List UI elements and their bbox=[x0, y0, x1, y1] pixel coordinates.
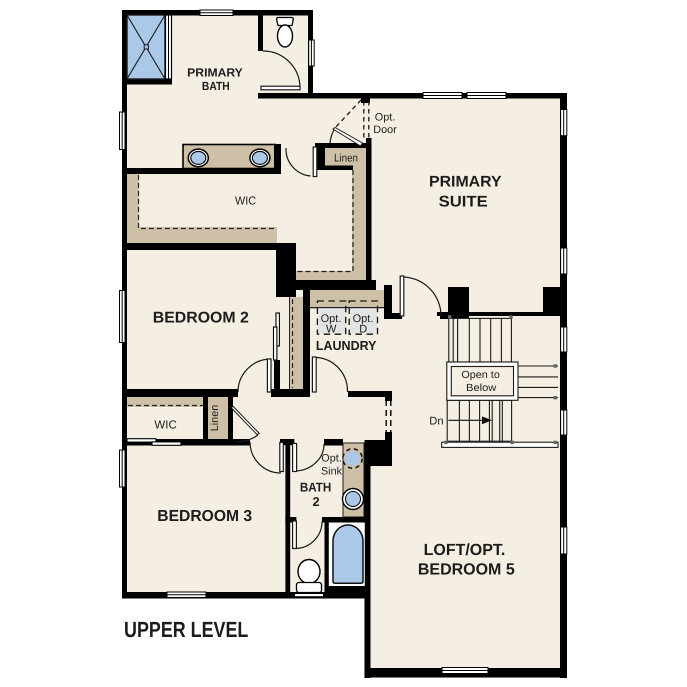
svg-text:LAUNDRY: LAUNDRY bbox=[316, 338, 377, 353]
svg-text:W: W bbox=[326, 324, 337, 336]
svg-text:PRIMARY: PRIMARY bbox=[429, 174, 502, 191]
svg-text:BEDROOM 2: BEDROOM 2 bbox=[153, 310, 249, 327]
svg-text:PRIMARY: PRIMARY bbox=[187, 66, 243, 80]
svg-text:SUITE: SUITE bbox=[439, 194, 488, 211]
svg-text:Opt.: Opt. bbox=[321, 453, 341, 465]
svg-text:Below: Below bbox=[466, 383, 497, 394]
svg-text:Linen: Linen bbox=[209, 405, 221, 431]
svg-text:LOFT/OPT.: LOFT/OPT. bbox=[424, 541, 506, 559]
svg-text:Linen: Linen bbox=[334, 153, 358, 165]
svg-text:BEDROOM 3: BEDROOM 3 bbox=[157, 508, 252, 525]
svg-text:D: D bbox=[359, 324, 367, 336]
svg-text:Dn: Dn bbox=[429, 415, 443, 427]
svg-text:Open to: Open to bbox=[461, 370, 500, 381]
svg-text:BATH: BATH bbox=[300, 479, 331, 494]
svg-text:BEDROOM 5: BEDROOM 5 bbox=[418, 561, 515, 579]
svg-text:Opt.: Opt. bbox=[375, 112, 395, 124]
svg-text:BATH: BATH bbox=[202, 79, 230, 93]
svg-text:Door: Door bbox=[373, 124, 397, 136]
svg-text:WIC: WIC bbox=[235, 194, 256, 207]
svg-text:2: 2 bbox=[312, 494, 319, 509]
svg-text:UPPER LEVEL: UPPER LEVEL bbox=[124, 617, 248, 642]
svg-text:WIC: WIC bbox=[154, 419, 176, 432]
svg-text:Sink: Sink bbox=[321, 466, 343, 478]
